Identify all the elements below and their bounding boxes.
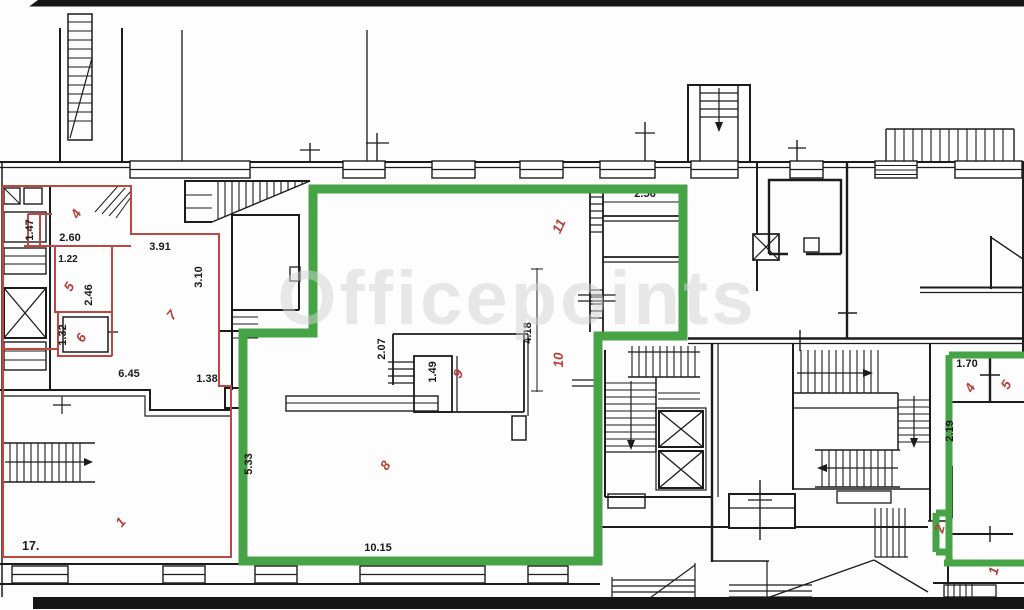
window (163, 566, 205, 583)
room-label-6: 6 (73, 330, 90, 344)
watermark-text: Officepoints (277, 256, 756, 341)
dim-246: 2.46 (83, 284, 95, 305)
window (255, 566, 297, 583)
dim-391: 3.91 (149, 241, 170, 253)
dim-149: 1.49 (427, 361, 439, 382)
green-outline (243, 189, 1024, 563)
room-label-11: 11 (549, 217, 569, 236)
room9-walls (286, 334, 528, 440)
room-label-10: 10 (551, 352, 566, 368)
stair-top-left (60, 14, 122, 162)
right-stairwell (793, 343, 930, 503)
top-left-notch (0, 0, 38, 28)
dim-138: 1.38 (196, 373, 217, 385)
dim-122: 1.22 (58, 254, 78, 265)
room-label-17: 17. (22, 539, 39, 553)
elevator-shaft-2 (659, 451, 703, 488)
dim-645: 6.45 (118, 368, 139, 380)
room-label-4: 4 (67, 206, 84, 221)
window (955, 161, 1022, 178)
window (12, 566, 68, 583)
dim-207: 2.07 (376, 338, 388, 359)
dim-219: 2.19 (944, 420, 956, 441)
top-bar (0, 0, 1024, 7)
room4-hatch (95, 186, 131, 218)
window (691, 161, 738, 178)
room-label-1: 1 (112, 514, 128, 529)
dim-533: 5.33 (243, 453, 255, 474)
room-label-7: 7 (163, 306, 180, 323)
window (790, 161, 823, 178)
window (130, 161, 250, 178)
dim-170: 1.70 (956, 358, 977, 370)
window (528, 566, 568, 583)
elevator-core (605, 343, 718, 562)
room-label-right-5: 5 (998, 377, 1015, 391)
elevator-shaft-1 (659, 411, 703, 447)
dim-1015: 10.15 (364, 542, 392, 554)
room-label-right-1: 1 (985, 565, 1001, 576)
right-upper-rooms (753, 162, 1024, 338)
dim-260: 2.60 (59, 232, 80, 244)
floor-plan-svg: 2.56 1.47 2.60 1.22 2.46 1.32 3.91 3.10 … (0, 0, 1024, 610)
windows-top (130, 161, 1022, 178)
vent-window (875, 161, 917, 178)
room-label-8: 8 (377, 458, 394, 473)
dim-310: 3.10 (193, 266, 205, 287)
ladder-top-right (886, 129, 1014, 162)
dim-132: 1.32 (57, 324, 69, 345)
elevator-left-icon (4, 288, 46, 338)
left-service-shafts (0, 186, 50, 390)
windows-bottom (12, 566, 568, 583)
window (360, 566, 485, 583)
floor-plan-page: 2.56 1.47 2.60 1.22 2.46 1.32 3.91 3.10 … (0, 0, 1024, 610)
stair-top-protrusion (688, 85, 750, 162)
window (600, 161, 655, 178)
window (432, 161, 475, 178)
window (520, 161, 563, 178)
stair-bottom-left (3, 443, 95, 482)
room-label-5: 5 (61, 279, 78, 293)
room-label-right-4: 4 (961, 380, 978, 395)
dim-147: 1.47 (24, 219, 36, 240)
bottom-bar (33, 597, 1024, 609)
window (343, 161, 385, 178)
